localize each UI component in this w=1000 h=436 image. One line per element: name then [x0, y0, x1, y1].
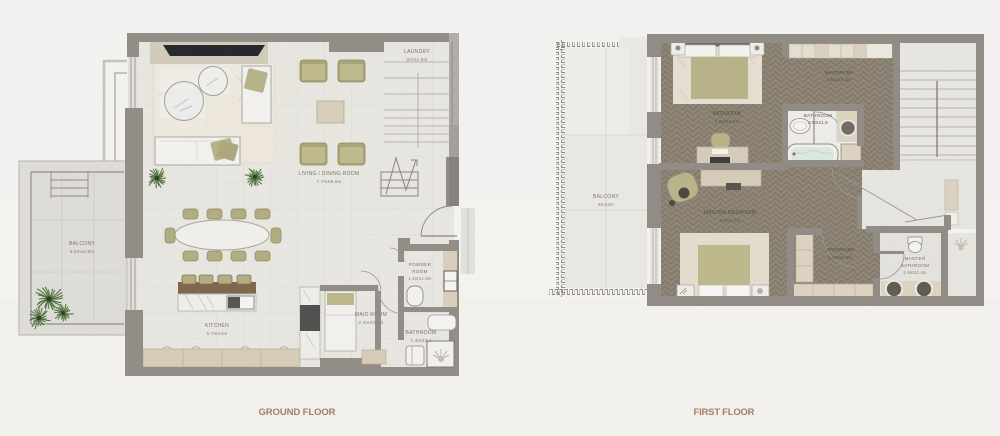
svg-text:FIRST FLOOR: FIRST FLOOR: [694, 407, 755, 418]
svg-text:GROUND FLOOR: GROUND FLOOR: [259, 407, 336, 418]
